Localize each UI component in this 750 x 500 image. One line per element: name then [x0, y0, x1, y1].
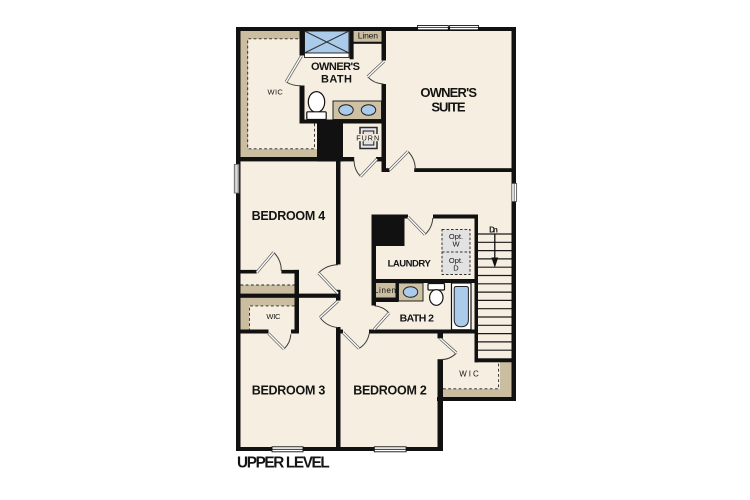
svg-text:OWNER'S: OWNER'S — [420, 85, 477, 100]
svg-text:Linen: Linen — [374, 286, 396, 295]
svg-text:UPPER LEVEL: UPPER LEVEL — [237, 455, 330, 472]
svg-text:WIC: WIC — [459, 369, 479, 378]
svg-text:FURN: FURN — [356, 134, 379, 143]
svg-text:WIC: WIC — [268, 87, 284, 96]
svg-text:BEDROOM 3: BEDROOM 3 — [252, 384, 326, 398]
svg-text:D: D — [453, 263, 459, 272]
svg-text:BEDROOM 2: BEDROOM 2 — [353, 384, 427, 398]
svg-text:W: W — [452, 240, 460, 249]
svg-text:OWNER'S: OWNER'S — [311, 61, 360, 73]
svg-text:BATH 2: BATH 2 — [400, 312, 435, 324]
svg-text:BEDROOM 4: BEDROOM 4 — [252, 209, 326, 223]
svg-text:WIC: WIC — [266, 312, 281, 321]
svg-text:Linen: Linen — [358, 31, 378, 41]
svg-text:BATH: BATH — [321, 74, 352, 86]
svg-text:SUITE: SUITE — [431, 100, 466, 115]
svg-text:Dn: Dn — [489, 225, 498, 234]
svg-text:LAUNDRY: LAUNDRY — [388, 258, 432, 269]
